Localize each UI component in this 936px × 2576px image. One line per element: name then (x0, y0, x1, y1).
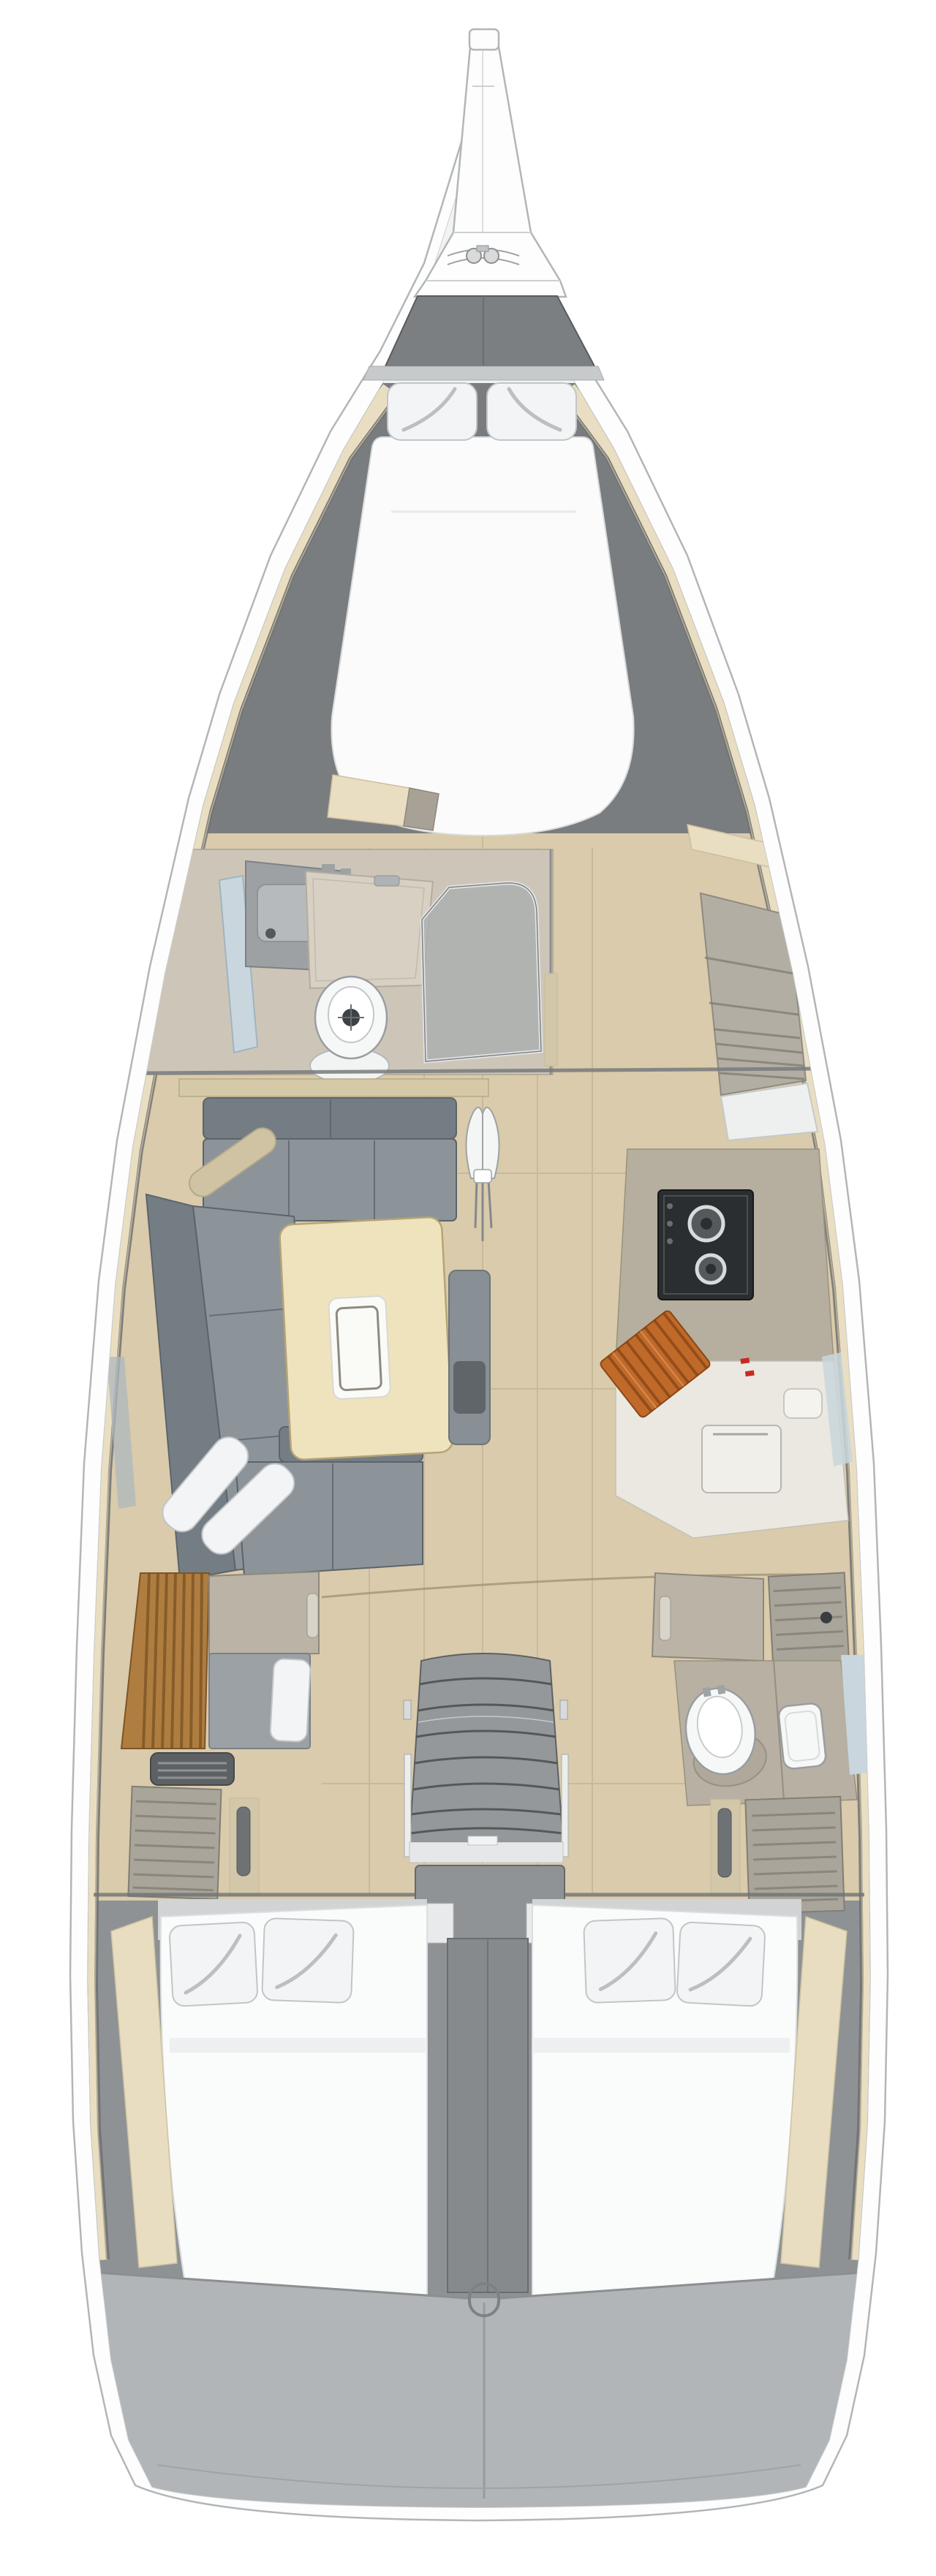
port-louver-locker (128, 1787, 221, 1899)
stair-handrail (562, 1754, 568, 1857)
starboard-louver-locker-upper (769, 1572, 849, 1667)
galley-sink (784, 1389, 822, 1418)
aft-cabin-port-door (209, 1572, 319, 1656)
seat-cushion (453, 1361, 486, 1414)
saloon-table (279, 1216, 454, 1460)
table-side-seat (449, 1270, 490, 1444)
yacht-floorplan-svg: Sailing yacht interior layout plan, top-… (0, 0, 936, 2576)
door-hinge-icon (322, 864, 335, 871)
foredeck-hatch (385, 296, 595, 366)
door-latch-plate (237, 1807, 250, 1876)
v-berth (328, 383, 634, 836)
stair-post (404, 1700, 411, 1719)
yacht-floorplan-page: Sailing yacht interior layout plan, top-… (0, 0, 936, 2576)
berth-pillow (169, 1922, 258, 2007)
stair-post (560, 1700, 567, 1719)
door-latch-icon (341, 868, 351, 874)
vberth-mattress (331, 437, 633, 836)
shower-drain-icon (374, 876, 399, 886)
aft-head-sink (778, 1702, 827, 1770)
berth-pillow (262, 1918, 354, 2003)
berth-pillow (584, 1918, 676, 2003)
door-handle (660, 1596, 671, 1640)
cabin-top-edge (363, 366, 604, 380)
galley (599, 1149, 848, 1538)
shower-pan (306, 864, 433, 988)
toilet-forward (310, 977, 389, 1083)
bench-pillow (270, 1659, 311, 1742)
bowsprit-tip (469, 29, 499, 50)
fridge-door (702, 1425, 781, 1493)
vberth-pillow-right (487, 383, 576, 440)
sheet-fold-port (170, 2038, 426, 2053)
saloon-sill (179, 1079, 488, 1096)
door-handle (307, 1594, 318, 1637)
sheet-fold-starboard (534, 2038, 790, 2053)
vberth-pillow-left (388, 383, 477, 440)
head-door (545, 974, 557, 1066)
berth-pillow (676, 1922, 766, 2007)
door-latch-plate (718, 1808, 731, 1877)
vent-grille-icon (151, 1753, 234, 1785)
shower-door (422, 883, 541, 1061)
faucet-icon (265, 928, 276, 939)
forward-head (135, 849, 557, 1083)
stove-icon (658, 1190, 753, 1300)
stair-handrail (404, 1754, 411, 1857)
companionway-stairs (404, 1653, 568, 1863)
step-tab (468, 1836, 497, 1845)
